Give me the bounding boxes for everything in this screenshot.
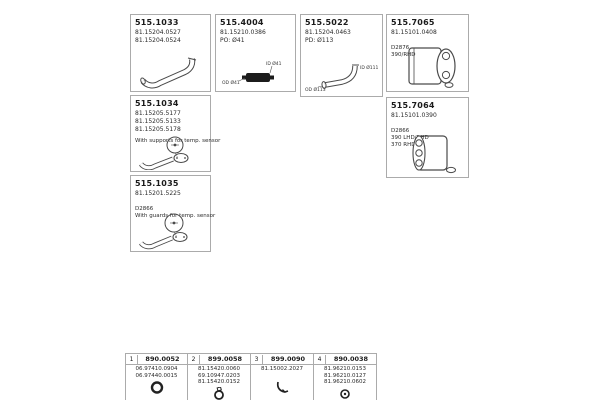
- oem-ref: 81.15205.5133: [135, 118, 206, 126]
- oem-ref: 81.15420.0152: [188, 379, 250, 386]
- oem-ref: 81.96210.0127: [314, 373, 376, 380]
- accessory-code: 899.0090: [263, 355, 313, 363]
- product-id: 515.1034: [135, 99, 206, 108]
- product-box-515-7064: 515.7064 81.15101.0390 D2866 390 LHD/RHD…: [386, 97, 469, 178]
- gasket-ring-icon: [149, 381, 165, 394]
- dim-label: OD Ø113: [305, 86, 326, 93]
- accessory-cell: 3 899.0090 81.15002.2027: [251, 353, 314, 400]
- accessory-code: 890.0052: [138, 355, 187, 363]
- product-box-515-1033: 515.1033 81.15204.0527 81.15204.0524: [130, 14, 211, 92]
- oem-ref: 81.96210.0602: [314, 379, 376, 386]
- exhaust-pipe-drawing: [134, 49, 206, 89]
- oem-ref: 81.15210.0386: [220, 29, 291, 37]
- dim-label: ID Ø111: [360, 64, 378, 71]
- oem-ref: 81.15205.5177: [135, 110, 206, 118]
- product-box-515-7065: 515.7065 81.15101.0408 D2876 390/RHD: [386, 14, 469, 92]
- product-id: 515.1033: [135, 18, 206, 27]
- oem-ref: 81.15101.0390: [391, 112, 464, 120]
- product-id: 515.1035: [135, 179, 206, 188]
- accessory-number: 2: [188, 355, 200, 364]
- bracket-hook-icon: [273, 381, 291, 394]
- product-id: 515.4004: [220, 18, 291, 27]
- accessory-number: 1: [126, 355, 138, 364]
- accessory-refs: 81.96210.0153 81.96210.0127 81.96210.060…: [314, 365, 376, 387]
- oem-ref: 06.97410.0904: [126, 366, 187, 373]
- catalog-page: 515.1033 81.15204.0527 81.15204.0524 515…: [0, 0, 600, 400]
- accessory-header: 3 899.0090: [251, 354, 313, 365]
- accessory-header: 4 890.0038: [314, 354, 376, 365]
- oem-ref: 81.15420.0060: [188, 366, 250, 373]
- clamp-icon: [211, 387, 227, 400]
- pipe-with-sensor-detail-drawing: [134, 212, 208, 250]
- pipe-with-sensor-detail-drawing: [134, 136, 208, 170]
- accessory-number: 3: [251, 355, 263, 364]
- dimension-note: PO: Ø41: [220, 37, 291, 45]
- product-box-515-5022: 515.5022 81.15204.0463 PD: Ø113 ID Ø111 …: [300, 14, 383, 97]
- grommet-icon: [338, 388, 352, 400]
- dim-label: ID Ø41: [266, 60, 282, 67]
- accessory-refs: 81.15002.2027: [251, 365, 313, 381]
- accessory-cell: 4 890.0038 81.96210.0153 81.96210.0127 8…: [314, 353, 377, 400]
- accessory-code: 899.0058: [200, 355, 250, 363]
- muffler-box-drawing: [407, 133, 463, 175]
- accessories-table: 1 890.0052 06.97410.0904 06.97440.0015 2…: [125, 353, 377, 400]
- accessory-code: 890.0038: [326, 355, 376, 363]
- product-id: 515.5022: [305, 18, 378, 27]
- oem-ref: 06.97440.0015: [126, 373, 187, 380]
- oem-ref: 81.15204.0463: [305, 29, 378, 37]
- product-box-515-4004: 515.4004 81.15210.0386 PO: Ø41 ID Ø41 OD…: [215, 14, 296, 92]
- oem-ref: 81.96210.0153: [314, 366, 376, 373]
- product-id: 515.7064: [391, 101, 464, 110]
- accessory-cell: 2 899.0058 81.15420.0060 69.10947.0203 8…: [188, 353, 251, 400]
- oem-ref: 81.15201.5225: [135, 190, 206, 198]
- oem-ref: 69.10947.0203: [188, 373, 250, 380]
- oem-ref: 81.15204.0527: [135, 29, 206, 37]
- accessory-cell: 1 890.0052 06.97410.0904 06.97440.0015: [125, 353, 188, 400]
- accessory-refs: 06.97410.0904 06.97440.0015: [126, 365, 187, 381]
- silencer-drawing: ID Ø41 OD Ø41: [220, 57, 294, 89]
- oem-ref: 81.15205.5178: [135, 126, 206, 134]
- oem-ref: 81.15204.0524: [135, 37, 206, 45]
- elbow-pipe-drawing: ID Ø111 OD Ø113: [303, 58, 381, 94]
- dimension-note: PD: Ø113: [305, 37, 378, 45]
- accessory-header: 1 890.0052: [126, 354, 187, 365]
- oem-ref: 81.15101.0408: [391, 29, 464, 37]
- oem-ref: 81.15002.2027: [251, 366, 313, 373]
- product-id: 515.7065: [391, 18, 464, 27]
- dim-label: OD Ø41: [222, 79, 240, 86]
- product-box-515-1035: 515.1035 81.15201.5225 D2866 With guards…: [130, 175, 211, 252]
- accessory-refs: 81.15420.0060 69.10947.0203 81.15420.015…: [188, 365, 250, 387]
- muffler-box-drawing: [405, 43, 461, 89]
- product-box-515-1034: 515.1034 81.15205.5177 81.15205.5133 81.…: [130, 95, 211, 172]
- accessory-header: 2 899.0058: [188, 354, 250, 365]
- accessory-number: 4: [314, 355, 326, 364]
